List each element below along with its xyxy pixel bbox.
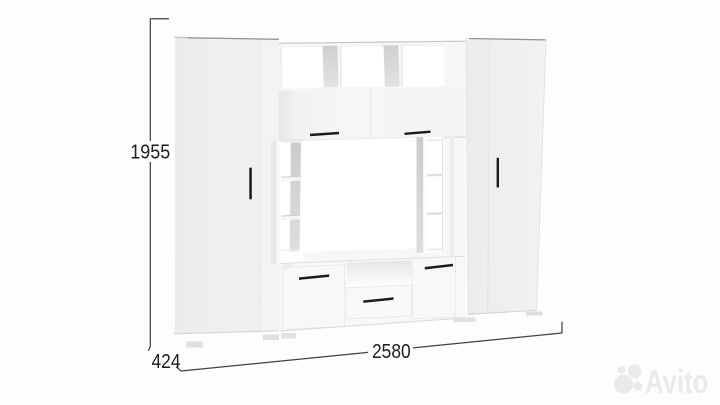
- svg-text:424: 424: [152, 351, 181, 373]
- svg-text:2580: 2580: [372, 341, 411, 363]
- svg-text:Avito: Avito: [645, 363, 709, 400]
- svg-text:1955: 1955: [130, 141, 170, 163]
